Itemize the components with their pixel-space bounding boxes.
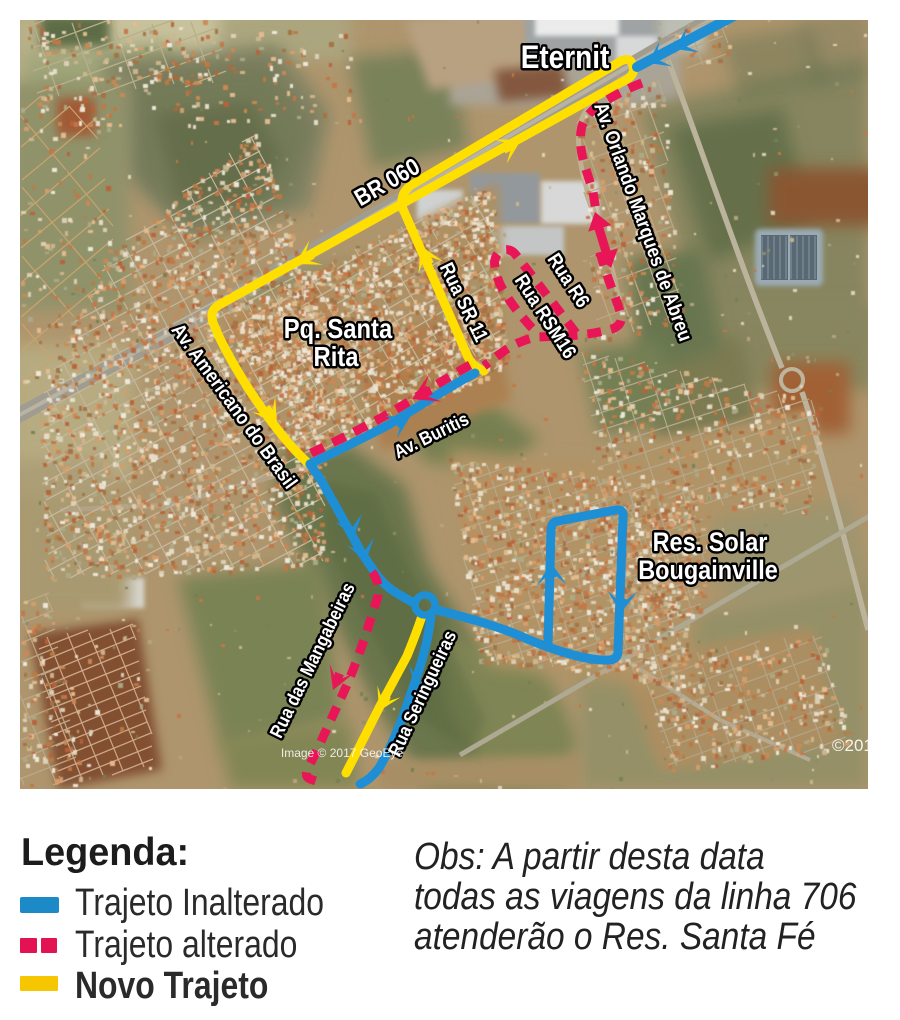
svg-text:©2010: ©2010 (832, 736, 868, 755)
svg-text:Rita: Rita (314, 340, 359, 372)
svg-text:Eternit: Eternit (521, 40, 610, 75)
svg-text:Res. Solar: Res. Solar (653, 528, 768, 558)
svg-text:Bougainville: Bougainville (638, 556, 778, 586)
svg-text:Image © 2017 GeoEye: Image © 2017 GeoEye (281, 746, 404, 760)
